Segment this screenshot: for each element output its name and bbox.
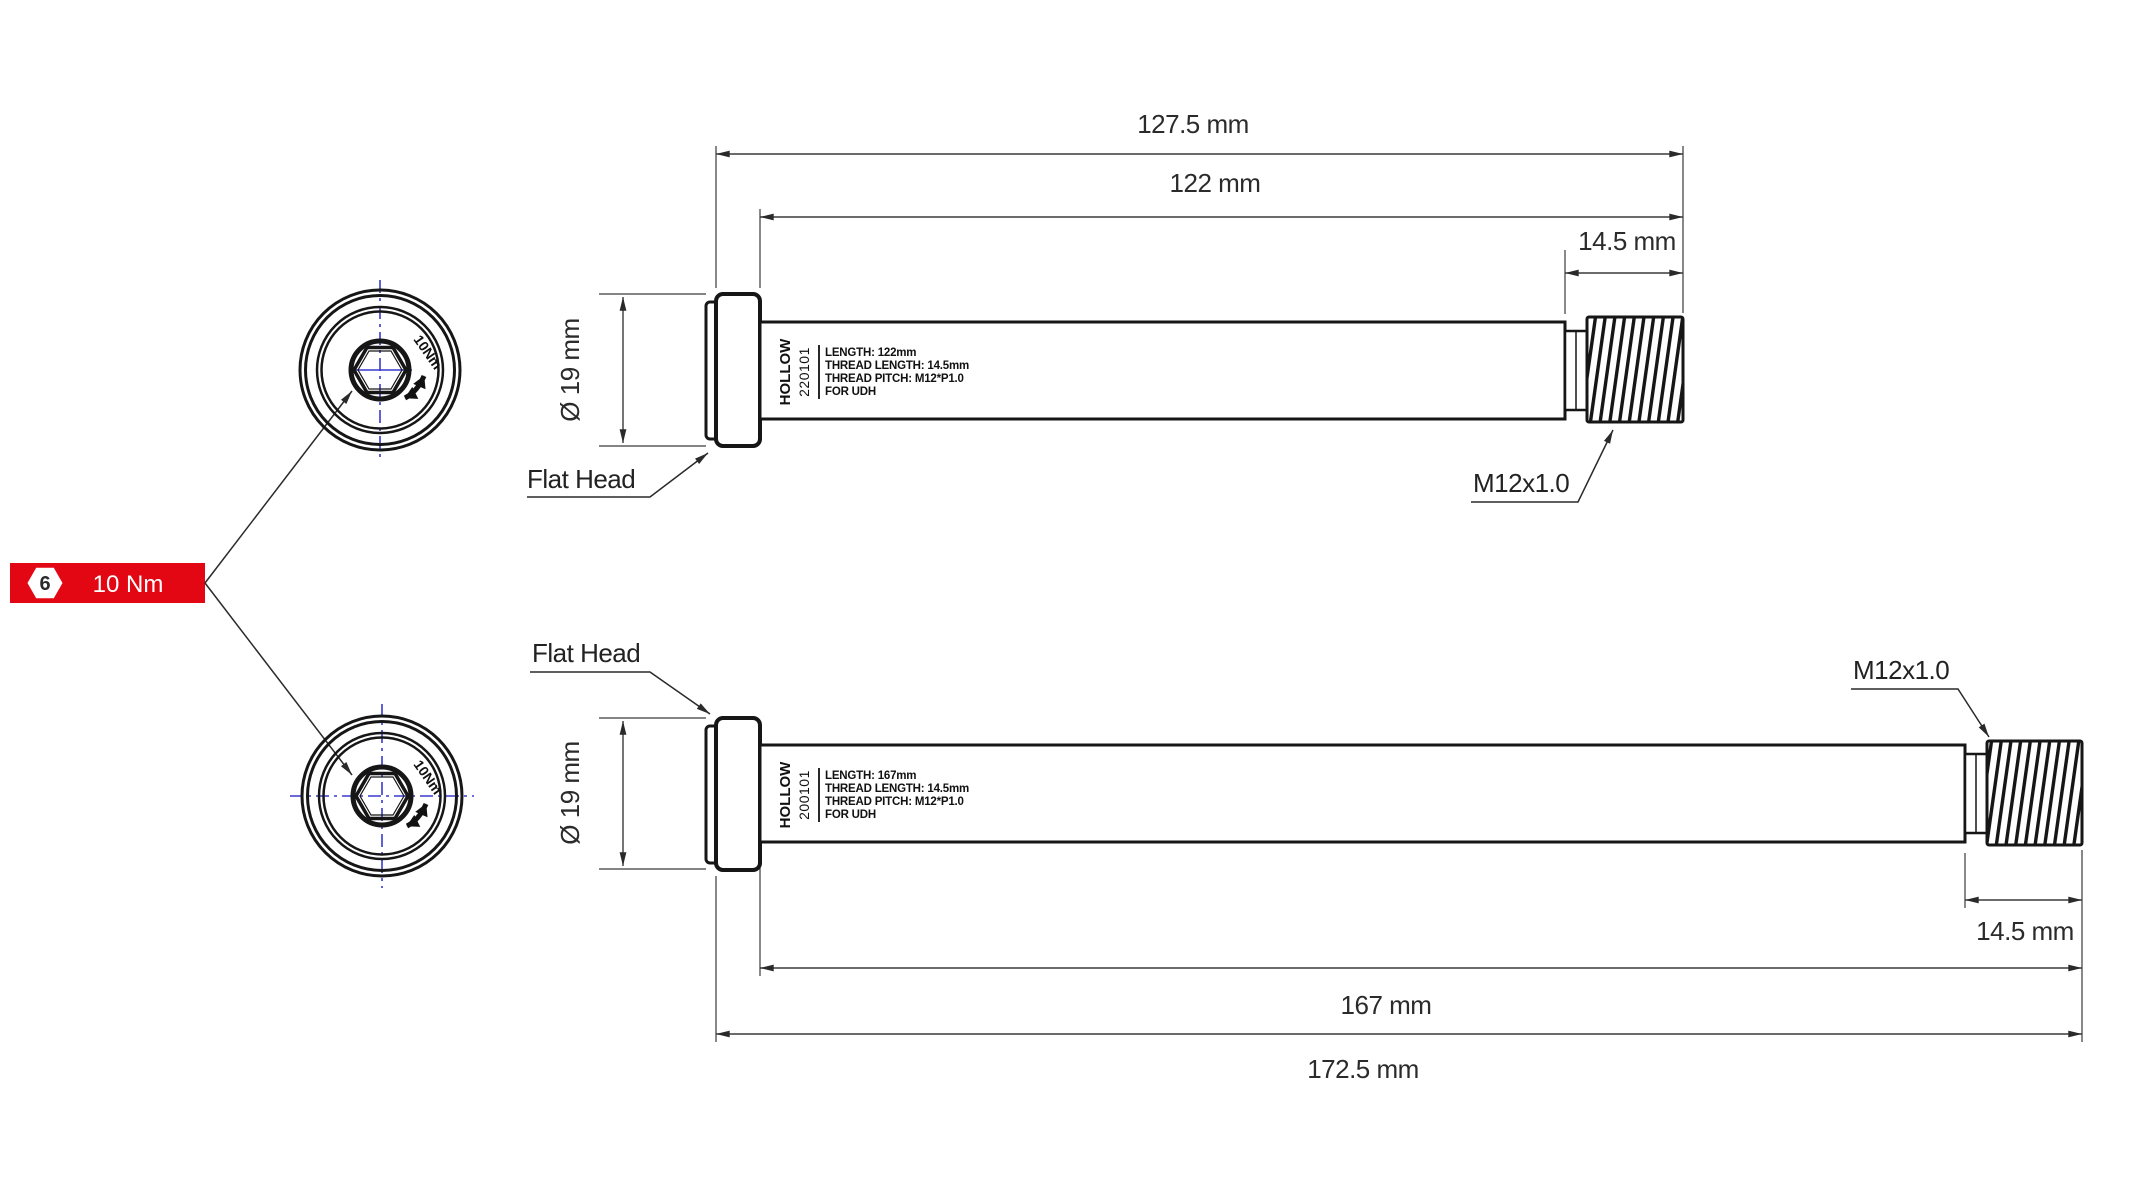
spec-line-thread-length: THREAD LENGTH: 14.5mm <box>825 783 969 795</box>
axle-drawing-svg: 6 10 Nm 10Nm 10Nm <box>0 0 2130 1202</box>
spec-line-standard: FOR UDH <box>825 809 876 821</box>
spec-line-thread-pitch: THREAD PITCH: M12*P1.0 <box>825 373 964 385</box>
dim-overall-label: 127.5 mm <box>1137 109 1249 139</box>
brand-engraving: HOLLOW <box>777 761 794 828</box>
axle-head <box>716 294 760 446</box>
axle-head <box>716 718 760 870</box>
thread-spec-callout-label: M12x1.0 <box>1473 468 1569 498</box>
dim-length-label: 167 mm <box>1341 990 1432 1020</box>
spec-line-standard: FOR UDH <box>825 386 876 398</box>
axle-167-side-view: 14.5 mm 167 mm 172.5 mm Ø 19 mm HOLLOW 2… <box>530 638 2082 1084</box>
torque-note-label: 10Nm <box>411 757 446 797</box>
flat-head-leader <box>530 672 710 714</box>
spec-line-thread-pitch: THREAD PITCH: M12*P1.0 <box>825 796 964 808</box>
dim-head-diameter-label: Ø 19 mm <box>555 318 585 421</box>
flat-head-callout-label: Flat Head <box>532 638 640 668</box>
leader-to-bottom-end-view <box>205 583 352 775</box>
thread-spec-callout-label: M12x1.0 <box>1853 655 1949 685</box>
hex-tool-size-label: 6 <box>39 573 50 595</box>
spec-line-length: LENGTH: 167mm <box>825 770 916 782</box>
axle-122-side-view: 127.5 mm 122 mm 14.5 mm Ø 19 mm HOLLOW 2… <box>527 109 1683 502</box>
thread-spec-leader <box>1851 689 1989 737</box>
threaded-section <box>1987 741 2082 845</box>
threaded-section <box>1587 317 1683 422</box>
end-view-top: 10Nm <box>300 280 460 460</box>
technical-drawing-page: 6 10 Nm 10Nm 10Nm <box>0 0 2130 1202</box>
dim-thread-label: 14.5 mm <box>1578 226 1676 256</box>
brand-engraving: HOLLOW <box>777 338 794 405</box>
spec-line-thread-length: THREAD LENGTH: 14.5mm <box>825 360 969 372</box>
leader-to-top-end-view <box>205 391 352 583</box>
dim-length-label: 122 mm <box>1170 168 1261 198</box>
torque-badge: 6 10 Nm <box>10 391 352 775</box>
dim-head-diameter-label: Ø 19 mm <box>555 741 585 844</box>
dim-overall-label: 172.5 mm <box>1307 1054 1419 1084</box>
end-view-bottom: 10Nm <box>290 704 474 888</box>
dim-thread-label: 14.5 mm <box>1976 916 2074 946</box>
torque-value-label: 10 Nm <box>93 571 164 598</box>
model-engraving: 200101 <box>796 770 812 820</box>
model-engraving: 220101 <box>796 347 812 397</box>
flat-head-callout-label: Flat Head <box>527 464 635 494</box>
spec-line-length: LENGTH: 122mm <box>825 347 916 359</box>
